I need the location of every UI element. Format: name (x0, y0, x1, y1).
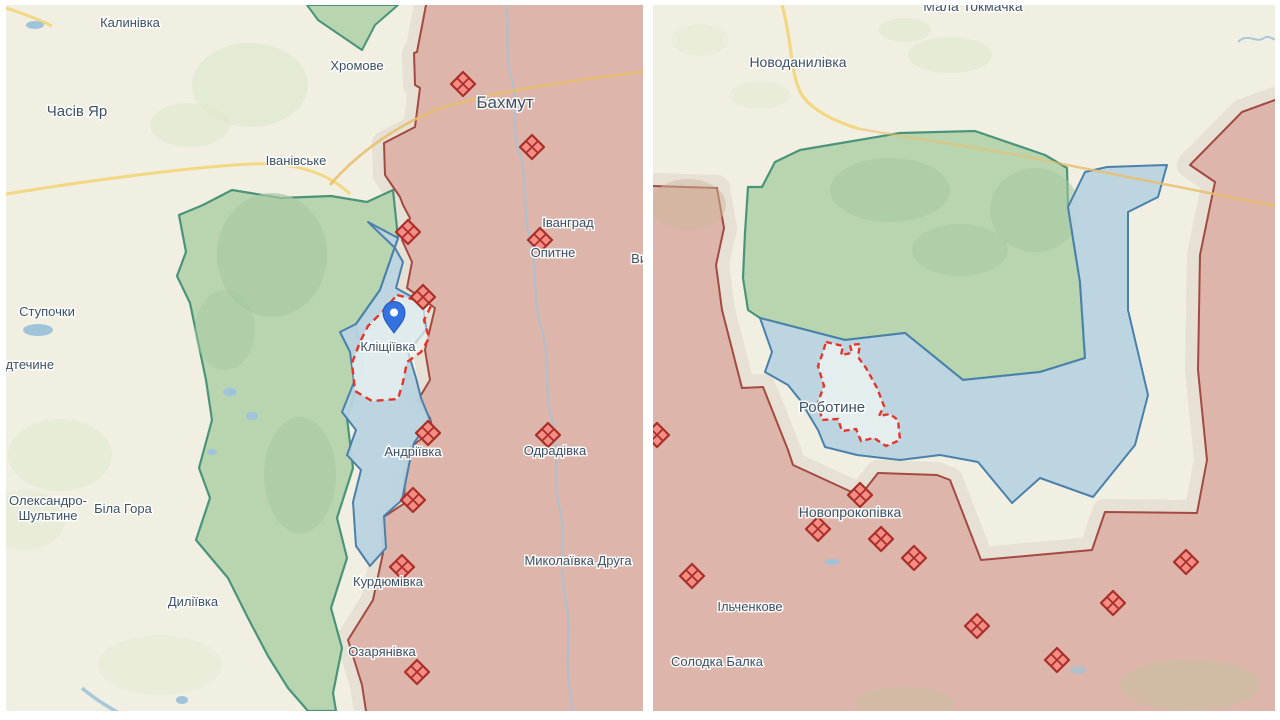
place-label: Іванівське (266, 153, 327, 168)
place-label: Кліщіївка (360, 339, 416, 354)
left-map-panel[interactable]: КалинівкаЧасів ЯрХромовеБахмутІванівське… (6, 5, 643, 711)
place-label: Одрадівка (524, 443, 587, 458)
place-label: Шультине (18, 508, 77, 523)
place-label: Новопрокопівка (799, 504, 902, 520)
place-label: Курдюмівка (353, 574, 424, 589)
place-label: Мала Токмачка (923, 5, 1023, 14)
two-map-comparison: КалинівкаЧасів ЯрХромовеБахмутІванівське… (0, 0, 1280, 720)
place-label: Новоданилівка (749, 54, 846, 70)
panel-divider (643, 0, 653, 720)
place-label: Ступочки (19, 304, 75, 319)
left-map-svg: КалинівкаЧасів ЯрХромовеБахмутІванівське… (6, 5, 643, 711)
place-label: Бахмут (476, 93, 533, 112)
place-label: Хромове (330, 58, 383, 73)
right-map-svg: Мала ТокмачкаНоводанилівкаРоботинеНовопр… (653, 5, 1275, 711)
place-label: Роботине (799, 399, 865, 416)
place-label: Опитне (531, 245, 576, 260)
place-label: Андріївка (384, 444, 442, 459)
place-label: Диліївка (168, 594, 219, 609)
place-label: Солодка Балка (671, 654, 764, 669)
place-label: Миколаївка Друга (524, 553, 632, 568)
place-label: Виїмка (631, 251, 643, 266)
place-label: Ільченкове (717, 599, 782, 614)
place-label: Предтечине (6, 357, 54, 372)
place-label: Калинівка (100, 15, 161, 30)
place-label: Олександро- (9, 493, 87, 508)
place-label: Часів Яр (47, 103, 107, 120)
place-label: Біла Гора (94, 501, 152, 516)
place-label: Іванград (542, 215, 594, 230)
place-label: Озарянівка (348, 644, 416, 659)
right-map-panel[interactable]: Мала ТокмачкаНоводанилівкаРоботинеНовопр… (653, 5, 1275, 711)
